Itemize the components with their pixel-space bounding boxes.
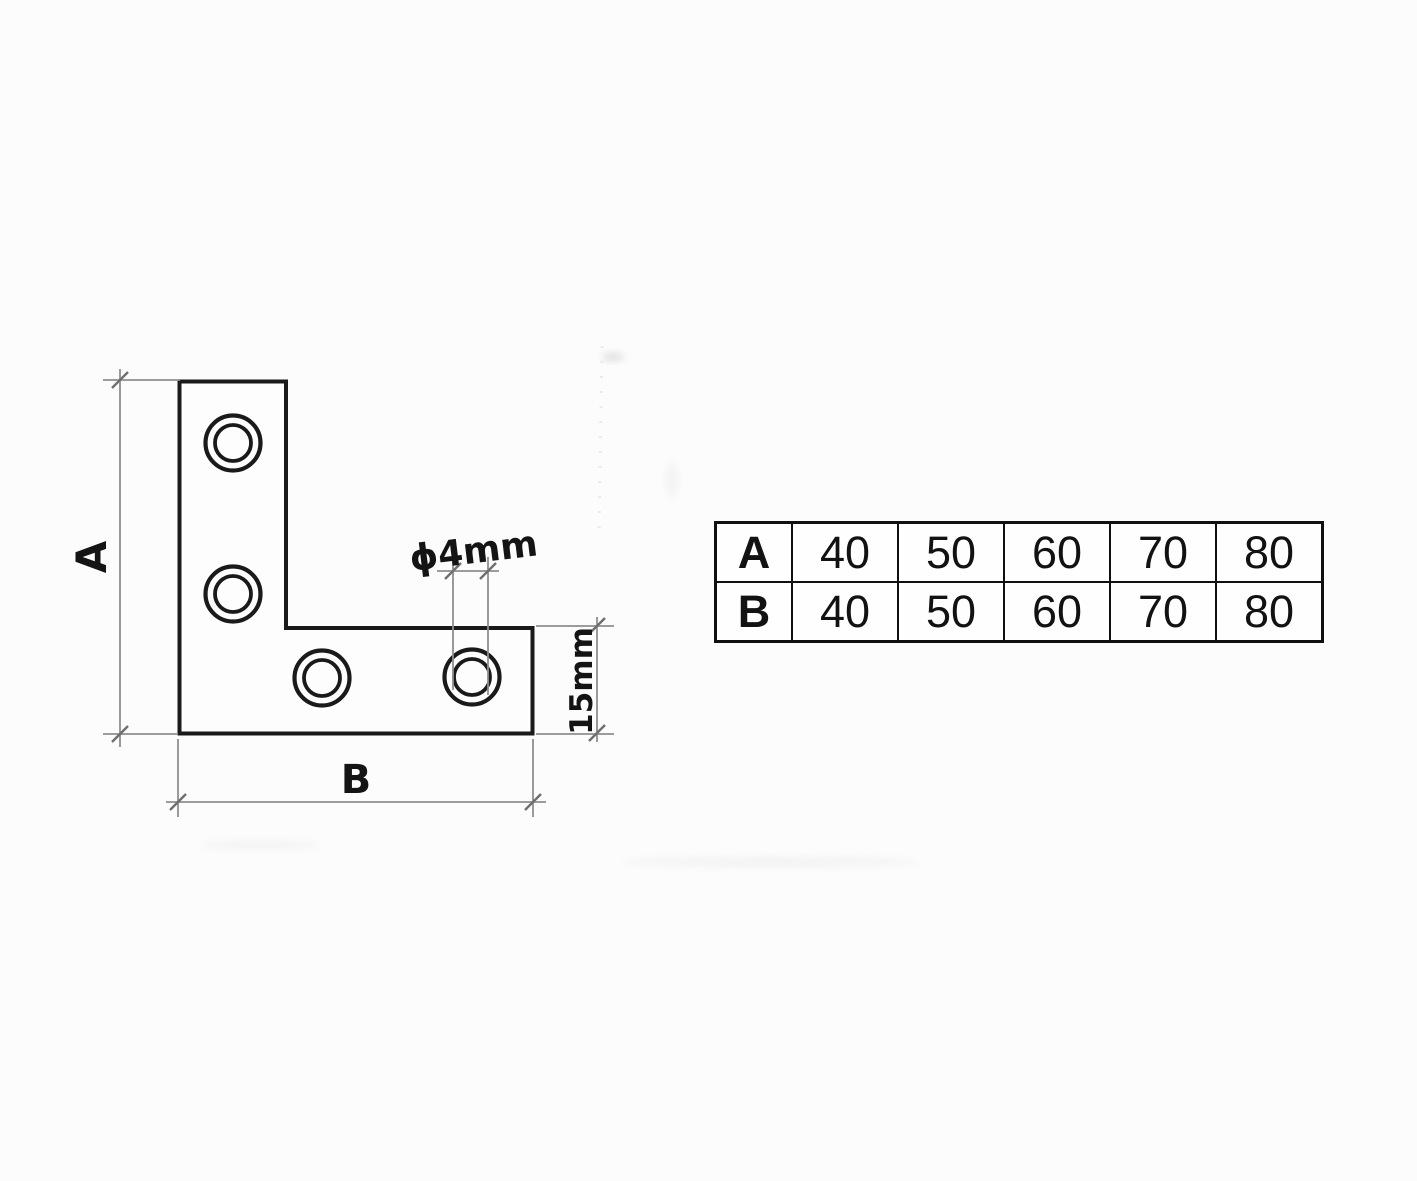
hole-diameter-label: ϕ4mm — [407, 523, 540, 579]
size-table-grid: A 40 50 60 70 80 B 40 50 60 70 80 — [714, 521, 1324, 643]
scan-smudge — [620, 857, 920, 867]
dim-b-label: B — [341, 757, 372, 803]
screw-hole-1 — [206, 416, 261, 471]
row-b-header-cell: B — [716, 582, 793, 642]
row-a-value-cell: 60 — [1004, 523, 1110, 583]
scan-smudge — [666, 462, 678, 498]
size-table: A 40 50 60 70 80 B 40 50 60 70 80 — [714, 521, 1324, 643]
row-a-header-cell: A — [716, 523, 793, 583]
row-b-value-cell: 80 — [1216, 582, 1323, 642]
table-row-b: B 40 50 60 70 80 — [716, 582, 1323, 642]
scan-smudge — [602, 353, 624, 361]
row-a-value-cell: 70 — [1110, 523, 1216, 583]
row-b-value-cell: 50 — [898, 582, 1004, 642]
row-a-value-cell: 40 — [792, 523, 898, 583]
scan-smudge — [200, 840, 320, 850]
row-b-value-cell: 70 — [1110, 582, 1216, 642]
row-b-value-cell: 40 — [792, 582, 898, 642]
row-a-value-cell: 50 — [898, 523, 1004, 583]
scanned-bracket-drawing-page: A B 15mm ϕ4mm — [0, 0, 1417, 1181]
scan-streak — [599, 346, 602, 532]
dim-a-label: A — [67, 540, 116, 573]
screw-hole-3 — [295, 651, 350, 706]
row-b-value-cell: 60 — [1004, 582, 1110, 642]
row-a-value-cell: 80 — [1216, 523, 1323, 583]
leg-width-label: 15mm — [564, 627, 600, 735]
table-row-a: A 40 50 60 70 80 — [716, 523, 1323, 583]
screw-hole-2 — [206, 567, 261, 622]
